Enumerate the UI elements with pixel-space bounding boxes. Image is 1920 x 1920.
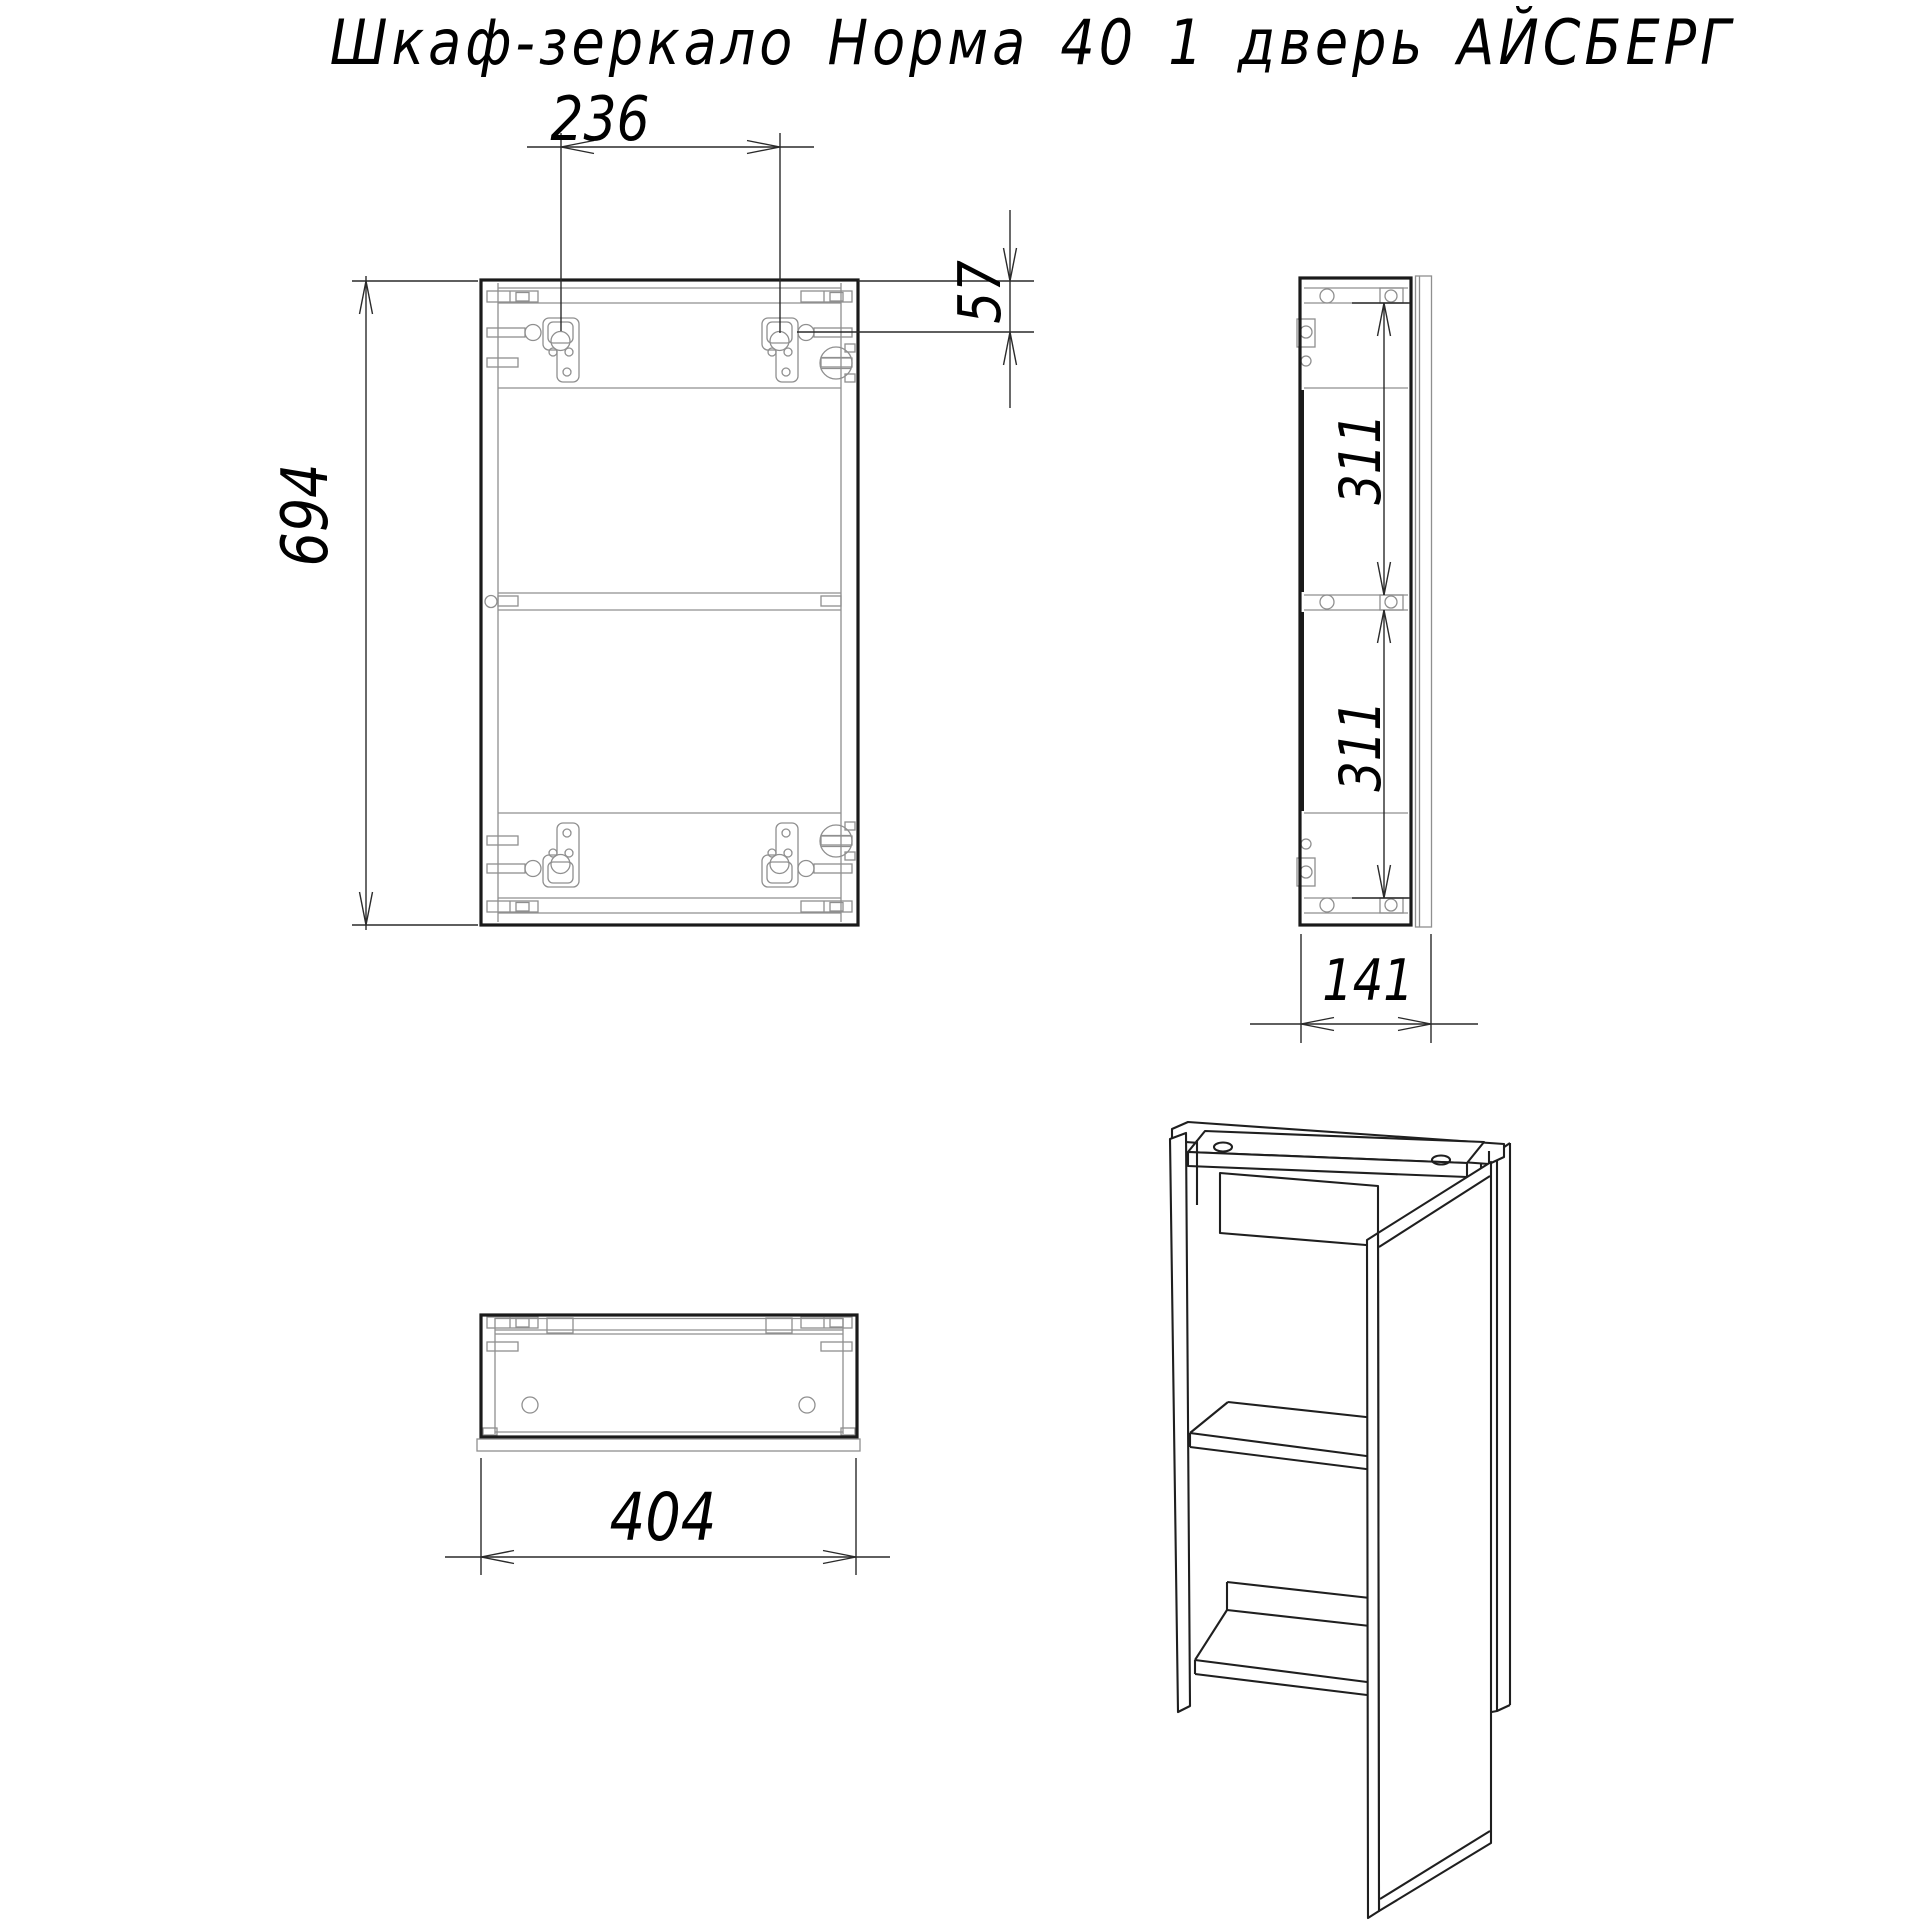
front-middle-shelf	[485, 593, 841, 610]
dim-311-upper: 311	[1328, 303, 1410, 595]
bottom-door-strip	[477, 1439, 860, 1451]
drawing-sheet: Шкаф-зеркало Норма 40 1 дверь АЙСБЕРГ	[0, 0, 1920, 1920]
side-outline	[1300, 278, 1411, 925]
dim-141: 141	[1250, 934, 1478, 1043]
front-outline	[481, 280, 858, 925]
dim-404: 404	[445, 1458, 890, 1575]
cam-lock-top	[820, 344, 855, 382]
iso-middle-shelf	[1190, 1402, 1375, 1470]
side-view	[1297, 276, 1432, 927]
side-door-panel	[1416, 276, 1432, 927]
bottom-view	[477, 1315, 860, 1451]
iso-bottom-shelf	[1195, 1582, 1370, 1695]
dim-311-lower: 311	[1328, 610, 1410, 898]
iso-left-panel	[1170, 1133, 1197, 1712]
dim-236: 236	[527, 84, 814, 333]
iso-top-panel	[1188, 1131, 1484, 1177]
drawing-title: Шкаф-зеркало Норма 40 1 дверь АЙСБЕРГ	[330, 5, 1735, 79]
dim-311-upper-label: 311	[1328, 413, 1394, 505]
hanger-plate-bottom-left	[543, 823, 579, 887]
title-text: Шкаф-зеркало Норма 40 1 дверь АЙСБЕРГ	[330, 5, 1735, 79]
cam-lock-bottom	[820, 822, 855, 860]
iso-top-rail-inner	[1220, 1173, 1378, 1246]
dim-404-label: 404	[610, 1480, 717, 1557]
dim-694-label: 694	[268, 463, 342, 566]
bottom-outline	[481, 1315, 857, 1437]
drawing-canvas: Шкаф-зеркало Норма 40 1 дверь АЙСБЕРГ	[0, 0, 1920, 1920]
dim-311-lower-label: 311	[1328, 700, 1394, 792]
isometric-view	[1170, 1122, 1510, 1918]
front-view	[481, 280, 858, 925]
dim-694: 694	[268, 276, 478, 930]
dim-57-label: 57	[945, 260, 1014, 324]
dim-236-label: 236	[550, 84, 649, 155]
hanger-plate-bottom-right	[762, 823, 798, 887]
dim-141-label: 141	[1322, 948, 1414, 1014]
iso-door	[1367, 1162, 1491, 1918]
